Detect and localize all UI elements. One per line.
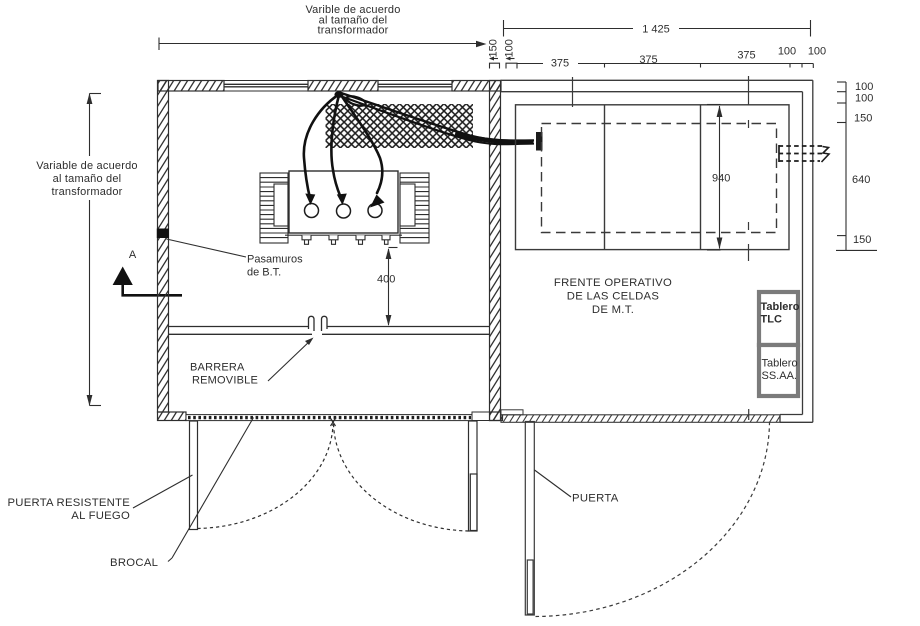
svg-text:transformador: transformador xyxy=(317,25,388,37)
svg-text:de B.T.: de B.T. xyxy=(247,267,281,279)
svg-text:640: 640 xyxy=(852,174,870,186)
svg-text:BARRERA: BARRERA xyxy=(190,362,245,374)
svg-text:al tamaño del: al tamaño del xyxy=(53,173,122,185)
svg-text:1 425: 1 425 xyxy=(642,24,670,36)
svg-text:DE M.T.: DE M.T. xyxy=(592,304,634,316)
svg-text:375: 375 xyxy=(551,58,569,70)
svg-text:150: 150 xyxy=(853,234,871,246)
svg-text:100: 100 xyxy=(855,81,873,93)
svg-text:100: 100 xyxy=(778,46,796,58)
svg-text:Variable de acuerdo: Variable de acuerdo xyxy=(36,160,137,172)
svg-text:100: 100 xyxy=(504,39,516,57)
svg-text:A: A xyxy=(129,249,137,261)
svg-text:150: 150 xyxy=(488,39,500,57)
svg-text:150: 150 xyxy=(854,113,872,125)
svg-text:Tablero: Tablero xyxy=(761,301,800,313)
svg-text:375: 375 xyxy=(639,54,657,66)
svg-text:BROCAL: BROCAL xyxy=(110,557,158,569)
svg-text:400: 400 xyxy=(377,274,395,286)
svg-text:REMOVIBLE: REMOVIBLE xyxy=(192,375,258,387)
svg-text:Tablero: Tablero xyxy=(762,358,798,370)
svg-text:DE LAS CELDAS: DE LAS CELDAS xyxy=(567,291,660,303)
svg-text:940: 940 xyxy=(712,173,730,185)
svg-text:100: 100 xyxy=(855,93,873,105)
svg-text:PUERTA RESISTENTE: PUERTA RESISTENTE xyxy=(8,497,131,509)
svg-text:transformador: transformador xyxy=(51,186,122,198)
svg-text:FRENTE OPERATIVO: FRENTE OPERATIVO xyxy=(554,277,672,289)
svg-text:375: 375 xyxy=(737,50,755,62)
svg-text:SS.AA.: SS.AA. xyxy=(762,370,797,382)
svg-text:TLC: TLC xyxy=(761,314,782,326)
svg-text:100: 100 xyxy=(808,46,826,58)
svg-text:AL FUEGO: AL FUEGO xyxy=(71,510,130,522)
svg-text:PUERTA: PUERTA xyxy=(572,493,619,505)
svg-text:Pasamuros: Pasamuros xyxy=(247,254,303,266)
